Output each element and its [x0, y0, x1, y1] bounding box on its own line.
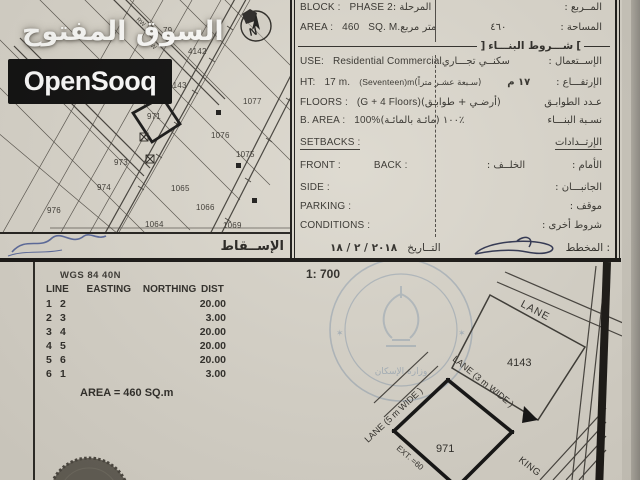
- krooki-scan-photo: RW RW N 79414241439711077107610759739749…: [0, 0, 640, 480]
- use-label-ar: الإســتعمال :: [548, 56, 602, 67]
- height-label: HT:: [300, 77, 315, 88]
- building-conditions-title: شـــروط البنـــاء: [488, 40, 573, 52]
- conditions-label-ar: شروط أخرى :: [542, 220, 602, 231]
- conditions-label: CONDITIONS :: [300, 220, 370, 231]
- lane-5m-label: LANE (5 m WIDE ): [363, 386, 425, 445]
- projection-label: الإســقاط: [220, 239, 284, 254]
- field-height: HT: 17 m. (Seventeen)m الإرتفـــاع : ١٧ …: [292, 77, 616, 88]
- use-value-ar: سكنــي تجـــاري: [442, 56, 510, 67]
- side-label-ar: الجانبـــان :: [555, 182, 602, 193]
- area-label: AREA :: [300, 22, 333, 33]
- plot-details-panel: BLOCK : PHASE 2 المــربع : المرحلة : ARE…: [292, 0, 616, 258]
- coord-row: 233.00: [46, 312, 231, 326]
- setbacks-label-ar: الإرتــدادات: [555, 137, 602, 150]
- field-front-back: FRONT : BACK : الأمام : الخلــف :: [292, 160, 616, 171]
- field-area: AREA : 460 SQ. M. المساحة : ٤٦٠ متر مربع: [292, 22, 616, 33]
- coordinates-table: LINE EASTING NORTHING DIST 1220.00233.00…: [46, 284, 231, 399]
- column-separator-dashed: [435, 55, 436, 237]
- barea-label: B. AREA :: [300, 115, 345, 126]
- column-separator: [435, 0, 436, 42]
- field-floors: FLOORS : (G + 4 Floors) عـدد الطوابـق (أ…: [292, 97, 616, 108]
- map-plot-971: 971: [147, 112, 161, 121]
- projection-strip: الإســقاط: [0, 232, 292, 258]
- datum-label: WGS 84 40N: [60, 270, 121, 281]
- col-dist: DIST: [201, 284, 231, 295]
- area-unit: SQ. M.: [368, 22, 400, 33]
- watermark-arabic-title: السوق المفتوح: [22, 16, 224, 47]
- field-barea: B. AREA : 100% نسـبة البنـــاء ٪١٠٠ (مائ…: [292, 115, 616, 126]
- area-note: AREA = 460 SQ.m: [80, 387, 231, 399]
- coord-row: 4520.00: [46, 340, 231, 354]
- col-easting: EASTING: [87, 284, 143, 295]
- coord-row: 1220.00: [46, 298, 231, 312]
- floors-value-ar: (أرضـي + طوابـق): [421, 97, 501, 108]
- barea-value: 100%: [354, 115, 380, 126]
- field-parking: PARKING : موقف :: [292, 201, 616, 212]
- height-note: (Seventeen)m: [359, 77, 414, 87]
- section-divider: [0, 258, 621, 262]
- col-northing: NORTHING: [143, 284, 201, 295]
- panel-divider-line: [290, 0, 292, 262]
- back-label: BACK :: [374, 160, 408, 171]
- planner-signature: [467, 236, 562, 260]
- planner-label-ar: المخطط :: [566, 242, 610, 254]
- field-block: BLOCK : PHASE 2 المــربع : المرحلة :: [292, 2, 616, 13]
- field-setbacks: SETBACKS : الإرتــدادات: [292, 137, 616, 150]
- use-label: USE:: [300, 56, 324, 67]
- diagram-plot-4143-label: 4143: [507, 357, 531, 369]
- height-note-ar: (سـبعة عشـر متراً): [414, 78, 481, 88]
- barea-label-ar: نسـبة البنـــاء: [547, 115, 602, 126]
- col-line: LINE: [46, 284, 87, 295]
- coord-row: 3420.00: [46, 326, 231, 340]
- survey-section: WGS 84 40N 1: 700 ✶ ✶ وزارة الإسكان LINE…: [0, 262, 640, 480]
- parking-label: PARKING :: [300, 201, 351, 212]
- ext-label: EXT. =60: [395, 444, 426, 473]
- map-plot-1077: 1077: [243, 97, 262, 106]
- map-plot-4142: 4142: [188, 47, 207, 56]
- sheet-right-border: [615, 0, 617, 262]
- barea-value-ar: ٪١٠٠ (مائـة بالمائـة): [380, 115, 464, 126]
- coordinates-table-header: LINE EASTING NORTHING DIST: [46, 284, 231, 295]
- map-plot-974: 974: [97, 183, 111, 192]
- area-unit-ar: متر مربع: [400, 22, 436, 33]
- photo-edge: [631, 0, 640, 480]
- lane-3m-label: LANE (3 m WIDE ): [451, 354, 516, 409]
- parking-label: KING: [516, 455, 543, 479]
- coord-row: 5620.00: [46, 354, 231, 368]
- height-value-ar: ١٧ م: [507, 77, 530, 88]
- block-label-ar: المــربع :: [564, 2, 602, 13]
- dark-round-stamp: [45, 452, 135, 480]
- parking-label-ar: موقف :: [570, 201, 602, 212]
- building-conditions-divider: ] شـــروط البنـــاء [: [292, 38, 616, 54]
- map-plot-1075: 1075: [236, 150, 255, 159]
- map-plot-1076: 1076: [211, 131, 230, 140]
- map-plot-973: 973: [114, 158, 128, 167]
- height-label-ar: الإرتفـــاع :: [556, 77, 602, 88]
- map-plot-1069: 1069: [223, 221, 242, 230]
- field-use: USE: Residential Commercial الإســتعمال …: [292, 56, 616, 67]
- watermark-brand: OpenSooq: [24, 66, 157, 97]
- lane-arrow-marker: [522, 406, 538, 423]
- field-conditions: CONDITIONS : شروط أخرى :: [292, 220, 616, 231]
- surveyor-signature: [4, 228, 114, 258]
- block-label: BLOCK :: [300, 2, 341, 13]
- field-side: SIDE : الجانبـــان :: [292, 182, 616, 193]
- front-label-ar: الأمام :: [572, 160, 602, 171]
- map-plot-1065: 1065: [171, 184, 190, 193]
- area-value-ar: ٤٦٠: [490, 22, 506, 33]
- area-value: 460: [342, 22, 359, 33]
- front-label: FRONT :: [300, 160, 341, 171]
- back-label-ar: الخلــف :: [487, 160, 525, 171]
- setbacks-label: SETBACKS :: [300, 137, 360, 150]
- plot-diagram: 4143 971 LANE LANE (3 m WIDE ) LANE (5 m…: [330, 262, 622, 480]
- map-plot-1066: 1066: [196, 203, 215, 212]
- area-label-ar: المساحة :: [560, 22, 602, 33]
- watermark-brand-box: OpenSooq: [8, 59, 172, 104]
- floors-label: FLOORS :: [300, 97, 348, 108]
- map-plot-1064: 1064: [145, 220, 164, 229]
- side-label: SIDE :: [300, 182, 330, 193]
- floors-value: (G + 4 Floors): [357, 97, 421, 108]
- floors-label-ar: عـدد الطوابـق: [544, 97, 602, 108]
- sheet-right-border-inner: [619, 0, 620, 262]
- panel-divider-line-inner: [294, 0, 295, 262]
- map-plot-976: 976: [47, 206, 61, 215]
- block-value: PHASE 2: [350, 2, 393, 13]
- use-value: Residential Commercial: [333, 56, 442, 67]
- block-value-ar: المرحلة :: [393, 2, 432, 13]
- coord-row: 613.00: [46, 368, 231, 382]
- diagram-plot-971-label: 971: [436, 443, 454, 455]
- height-value: 17 m.: [324, 77, 350, 88]
- sheet-left-border: [33, 262, 35, 480]
